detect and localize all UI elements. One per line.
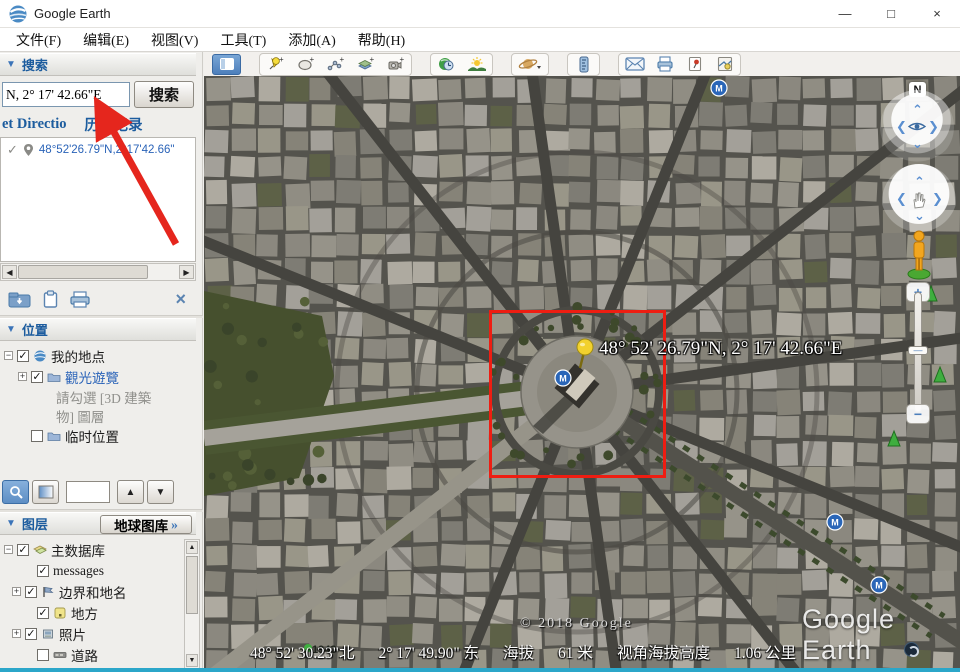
main-toolbar: + + + + + (204, 52, 960, 76)
pin-coordinates-label: 48° 52' 26.79"N, 2° 17' 42.66"E (599, 338, 842, 360)
temporary-places-label[interactable]: 临时位置 (65, 426, 119, 446)
tree-row-roads[interactable]: 道路 (0, 644, 178, 665)
expander-icon[interactable]: − (4, 351, 13, 360)
borders-flag-icon (41, 586, 55, 598)
add-placemark-button[interactable]: + (261, 54, 290, 75)
search-tabs: et Directio 历史记录 (0, 112, 196, 136)
look-joystick[interactable]: ⌃ ⌄ ❮ ❯ (880, 90, 954, 164)
tree-note-line1: 請勾選 [3D 建築 (0, 387, 196, 406)
google-earth-window: Google Earth — □ × 文件(F) 编辑(E) 视图(V) 工具(… (0, 0, 960, 672)
close-button[interactable]: × (914, 0, 960, 27)
map-viewport[interactable]: MMMM 48° 52' 26.79"N, 2° 17' 42.66"E © 2… (204, 76, 960, 672)
checkbox[interactable]: ✓ (17, 350, 29, 362)
layer-label[interactable]: messages (53, 563, 104, 579)
status-bar: 48° 52' 30.23"北 2° 17' 49.90" 东 海拔 61 米 … (250, 641, 930, 663)
menu-add[interactable]: 添加(A) (278, 28, 345, 52)
tree-row-borders[interactable]: + ✓ 边界和地名 (0, 581, 178, 602)
my-places-label[interactable]: 我的地点 (51, 346, 105, 366)
look-down-icon[interactable]: ⌄ (912, 136, 923, 152)
layers-panel-title: 图层 (22, 514, 48, 533)
layer-label[interactable]: 道路 (71, 645, 98, 665)
checkbox[interactable]: ✓ (31, 371, 43, 383)
search-actions-row: × (0, 284, 196, 314)
save-image-button[interactable] (680, 54, 709, 75)
status-eye-alt-value: 1.06 公里 (734, 641, 796, 663)
minimize-button[interactable]: — (822, 0, 868, 27)
scrollbar-thumb[interactable] (18, 265, 148, 279)
svg-text:+: + (309, 56, 314, 64)
scrollbar-thumb[interactable] (186, 556, 198, 614)
move-up-icon[interactable]: ⌃ (914, 174, 925, 190)
zoom-out-button[interactable]: − (906, 404, 930, 424)
look-left-icon[interactable]: ❮ (896, 119, 907, 135)
hand-icon (910, 190, 928, 210)
checkbox[interactable]: ✓ (25, 586, 37, 598)
layers-tree: − ✓ 主数据库 ✓ messages + ✓ 边界和 (0, 539, 178, 669)
menu-help[interactable]: 帮助(H) (348, 28, 415, 52)
places-panel-header[interactable]: ▼ 位置 (0, 318, 196, 341)
places-icon (53, 607, 67, 619)
sunlight-button[interactable] (462, 54, 491, 75)
svg-text:+: + (279, 56, 284, 64)
tree-row-places[interactable]: ✓ 地方 (0, 602, 178, 623)
tree-row-my-places[interactable]: − ✓ 我的地点 (0, 345, 196, 366)
planets-button[interactable] (513, 54, 547, 75)
tree-row-messages[interactable]: ✓ messages (0, 560, 178, 581)
menu-view[interactable]: 视图(V) (141, 28, 208, 52)
places-tools-row: ▲ ▼ (0, 477, 196, 507)
svg-text:+: + (369, 56, 374, 64)
result-check-icon: ✓ (7, 142, 18, 158)
collapse-triangle-icon: ▼ (6, 518, 16, 529)
highlight-rectangle (489, 310, 666, 478)
search-panel-title: 搜索 (22, 55, 48, 74)
search-result-text: 48°52'26.79"N,2°17'42.66" (39, 144, 175, 156)
folder-icon (47, 430, 61, 442)
print-button[interactable] (650, 54, 679, 75)
toggle-sidebar-button[interactable] (212, 54, 241, 75)
earth-gallery-button[interactable]: 地球图库 » (100, 515, 192, 534)
layer-label[interactable]: 边界和地名 (59, 582, 127, 602)
email-button[interactable] (620, 54, 649, 75)
my-places-globe-icon (33, 350, 47, 362)
layer-label[interactable]: 地方 (71, 603, 98, 623)
save-to-places-icon[interactable] (8, 291, 31, 308)
checkbox[interactable] (31, 430, 43, 442)
opacity-button[interactable] (32, 480, 59, 504)
search-close-icon[interactable]: × (175, 289, 186, 310)
status-eye-alt-label: 视角海拔高度 (617, 641, 710, 663)
layer-label[interactable]: 照片 (59, 624, 86, 644)
svg-text:M: M (831, 518, 839, 528)
photos-icon (41, 628, 55, 640)
maximize-button[interactable]: □ (868, 0, 914, 27)
menu-file[interactable]: 文件(F) (6, 28, 71, 52)
vertical-scrollbar[interactable]: ▲ ▼ (184, 539, 200, 669)
tree-row-primary-database[interactable]: − ✓ 主数据库 (0, 539, 178, 560)
menu-edit[interactable]: 编辑(E) (73, 28, 139, 52)
search-results-list[interactable]: ✓ 48°52'26.79"N,2°17'42.66" (0, 137, 196, 262)
places-panel-title: 位置 (22, 320, 48, 339)
svg-text:M: M (875, 581, 883, 591)
animation-speed-input[interactable] (66, 481, 110, 503)
places-tree: − ✓ 我的地点 + ✓ 觀光遊覽 請勾選 [3D 建築 物] 圖 (0, 345, 196, 446)
database-icon (33, 544, 47, 556)
svg-text:M: M (715, 84, 723, 94)
layer-label[interactable]: 主数据库 (51, 540, 105, 560)
add-path-button[interactable]: + (321, 54, 350, 75)
search-input[interactable] (2, 82, 130, 107)
placemark-pin-icon (23, 143, 34, 157)
search-panel-header[interactable]: ▼ 搜索 (0, 53, 196, 76)
ruler-button[interactable] (569, 54, 598, 75)
menu-tools[interactable]: 工具(T) (210, 28, 276, 52)
scroll-left-icon[interactable]: ◀ (2, 265, 17, 279)
horizontal-scrollbar[interactable]: ◀ ▶ (0, 263, 196, 281)
window-title: Google Earth (34, 6, 111, 21)
status-elevation-label: 海拔 (503, 641, 534, 663)
search-places-button[interactable] (2, 480, 29, 504)
expander-icon[interactable]: − (4, 545, 13, 554)
tree-row-temporary[interactable]: 临时位置 (0, 425, 196, 446)
status-longitude: 2° 17' 49.90" 东 (378, 641, 479, 663)
checkbox[interactable] (37, 649, 49, 661)
expander-icon[interactable]: + (18, 372, 27, 381)
look-right-icon[interactable]: ❯ (928, 119, 939, 135)
move-joystick[interactable]: ⌃ ⌄ ❮ ❯ (882, 164, 956, 238)
collapse-triangle-icon: ▼ (6, 324, 16, 335)
scroll-up-icon[interactable]: ▲ (186, 541, 198, 554)
window-bottom-edge (0, 668, 960, 672)
double-chevron-icon: » (171, 517, 178, 533)
search-button[interactable]: 搜索 (134, 81, 194, 108)
print-icon[interactable] (70, 291, 90, 308)
checkbox[interactable]: ✓ (17, 544, 29, 556)
tree-note-line2: 物] 圖層 (0, 406, 196, 425)
search-row: 搜索 (0, 79, 196, 109)
zoom-slider[interactable]: + — − (906, 282, 930, 422)
tree-row-photos[interactable]: + ✓ 照片 (0, 623, 178, 644)
move-up-button[interactable]: ▲ (117, 480, 144, 504)
move-left-icon[interactable]: ❮ (896, 191, 907, 207)
checkbox[interactable]: ✓ (37, 607, 49, 619)
status-elevation-value: 61 米 (558, 641, 593, 663)
street-view-pegman[interactable] (906, 228, 932, 280)
tab-get-directions[interactable]: et Directio (2, 116, 67, 133)
tab-history[interactable]: 历史记录 (85, 114, 143, 135)
layers-panel-header[interactable]: ▼ 图层 地球图库 » (0, 512, 196, 535)
search-result-row[interactable]: ✓ 48°52'26.79"N,2°17'42.66" (1, 138, 195, 158)
map-pushpin-icon[interactable] (572, 338, 598, 372)
checkbox[interactable]: ✓ (37, 565, 49, 577)
move-right-icon[interactable]: ❯ (932, 191, 943, 207)
sidebar: ▼ 搜索 搜索 et Directio 历史记录 ✓ 48°52'26.79"N… (0, 52, 203, 672)
expander-icon[interactable]: + (12, 629, 21, 638)
scroll-down-icon[interactable]: ▼ (186, 654, 198, 667)
zoom-handle[interactable]: — (908, 346, 928, 355)
svg-text:+: + (399, 56, 404, 64)
checkbox[interactable]: ✓ (25, 628, 37, 640)
svg-text:+: + (339, 56, 344, 64)
map-copyright: © 2018 Google (520, 616, 633, 632)
status-latitude: 48° 52' 30.23"北 (250, 641, 354, 663)
move-down-button[interactable]: ▼ (147, 480, 174, 504)
tree-row-sightseeing[interactable]: + ✓ 觀光遊覽 (0, 366, 196, 387)
title-bar: Google Earth — □ × (0, 0, 960, 28)
eye-icon (908, 120, 926, 133)
add-polygon-button[interactable]: + (291, 54, 320, 75)
copy-icon[interactable] (43, 290, 58, 309)
menu-bar: 文件(F) 编辑(E) 视图(V) 工具(T) 添加(A) 帮助(H) (0, 28, 960, 52)
historical-imagery-button[interactable] (432, 54, 461, 75)
streaming-indicator-icon (904, 642, 919, 657)
record-tour-button[interactable]: + (381, 54, 410, 75)
google-earth-logo (8, 4, 28, 24)
scroll-right-icon[interactable]: ▶ (179, 265, 194, 279)
folder-icon (47, 371, 61, 383)
move-down-icon[interactable]: ⌄ (914, 208, 925, 224)
expander-icon[interactable]: + (12, 587, 21, 596)
roads-icon (53, 649, 67, 661)
add-image-overlay-button[interactable]: + (351, 54, 380, 75)
view-in-maps-button[interactable] (710, 54, 739, 75)
collapse-triangle-icon: ▼ (6, 59, 16, 70)
sightseeing-label[interactable]: 觀光遊覽 (65, 367, 119, 387)
look-up-icon[interactable]: ⌃ (912, 102, 923, 118)
